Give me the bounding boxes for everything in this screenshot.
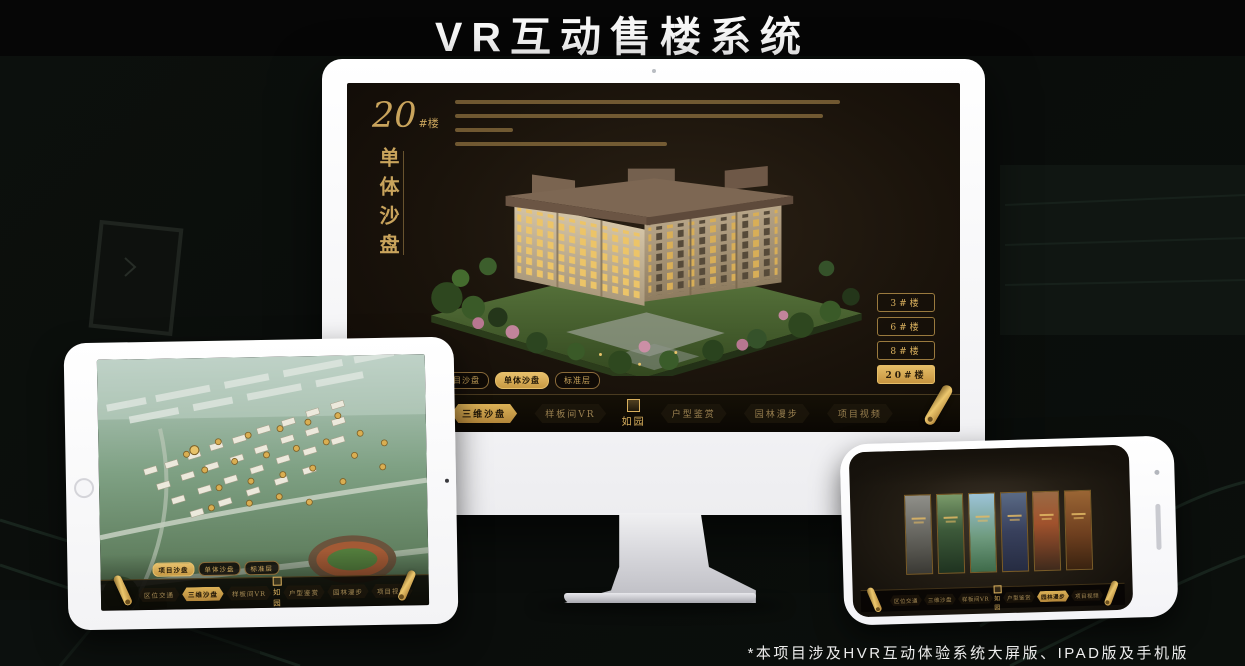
home-button[interactable] bbox=[74, 477, 94, 497]
vertical-rule bbox=[403, 151, 404, 255]
nav-item-project-video[interactable]: 项目视频 bbox=[825, 404, 895, 423]
tab-single-sandtable[interactable]: 单体沙盘 bbox=[198, 561, 240, 576]
floor-button-3[interactable]: 3#楼 bbox=[877, 293, 935, 312]
scroll-handle-icon[interactable] bbox=[1103, 580, 1119, 607]
scroll-handle-icon[interactable] bbox=[923, 383, 955, 427]
nav-item-location-traffic[interactable]: 区位交通 bbox=[889, 594, 923, 606]
building-title: 20#楼 bbox=[372, 99, 439, 134]
nav-item-3d-sandtable[interactable]: 三维沙盘 bbox=[449, 404, 519, 423]
nav-item-floorplan[interactable]: 户型鉴赏 bbox=[282, 585, 326, 600]
ipad-screen: 项目沙盘 单体沙盘 标准层 区位交通 三维沙盘 样板间VR 如园 户型鉴赏 园林… bbox=[97, 354, 429, 611]
tab-standard-floor[interactable]: 标准层 bbox=[555, 372, 600, 389]
building-number: 20 bbox=[372, 96, 417, 136]
nav-item-garden-walk[interactable]: 园林漫步 bbox=[326, 584, 370, 599]
floor-button-group: 3#楼 6#楼 8#楼 20#楼 bbox=[877, 293, 935, 389]
nav-item-location-traffic[interactable]: 区位交通 bbox=[137, 587, 181, 602]
panorama-card-row bbox=[904, 490, 1093, 575]
phone-screen: 区位交通 三维沙盘 样板间VR 如园 户型鉴赏 园林漫步 项目视频 bbox=[849, 445, 1133, 618]
panorama-card-6[interactable] bbox=[1064, 490, 1093, 571]
panorama-card-1[interactable] bbox=[904, 494, 933, 575]
scroll-handle-icon[interactable] bbox=[866, 586, 883, 613]
monitor-stand bbox=[558, 513, 762, 603]
ipad-sandtable-tabs: 项目沙盘 单体沙盘 标准层 bbox=[152, 561, 279, 577]
nav-item-project-video[interactable]: 项目视频 bbox=[1070, 589, 1104, 601]
nav-item-3d-sandtable[interactable]: 三维沙盘 bbox=[923, 593, 957, 605]
panorama-card-4[interactable] bbox=[1000, 491, 1029, 572]
brand-seal-icon bbox=[994, 585, 1002, 593]
footnote: *本项目涉及HVR互动体验系统大屏版、IPAD版及手机版 bbox=[748, 642, 1189, 663]
brand-logo[interactable]: 如园 bbox=[273, 577, 283, 609]
nav-item-model-room-vr[interactable]: 样板间VR bbox=[225, 586, 273, 601]
brand-seal-icon bbox=[273, 577, 282, 586]
panorama-card-3[interactable] bbox=[968, 492, 997, 573]
brand-logo-text: 如园 bbox=[273, 587, 282, 609]
tab-standard-floor[interactable]: 标准层 bbox=[244, 561, 279, 576]
ipad-device: 项目沙盘 单体沙盘 标准层 区位交通 三维沙盘 样板间VR 如园 户型鉴赏 园林… bbox=[64, 337, 459, 631]
floor-button-6[interactable]: 6#楼 bbox=[877, 317, 935, 336]
scroll-handle-icon[interactable] bbox=[112, 574, 133, 606]
brand-logo-text: 如园 bbox=[994, 593, 1002, 611]
nav-item-floorplan[interactable]: 户型鉴赏 bbox=[1002, 591, 1036, 603]
camera-icon bbox=[445, 478, 449, 482]
brand-seal-icon bbox=[627, 399, 640, 412]
section-vertical-label: 单体沙盘 bbox=[374, 147, 403, 263]
building-3d-render[interactable] bbox=[417, 151, 872, 376]
tab-project-sandtable[interactable]: 项目沙盘 bbox=[152, 562, 194, 577]
nav-item-3d-sandtable[interactable]: 三维沙盘 bbox=[181, 587, 225, 602]
camera-icon bbox=[652, 69, 656, 73]
page-title: VR互动售楼系统 bbox=[0, 3, 1245, 63]
building-suffix: #楼 bbox=[419, 117, 439, 130]
nav-item-garden-walk[interactable]: 园林漫步 bbox=[742, 404, 812, 423]
scene-ceiling-shadow bbox=[849, 445, 1130, 487]
ipad-bottom-nav: 区位交通 三维沙盘 样板间VR 如园 户型鉴赏 园林漫步 项目视频 bbox=[101, 574, 429, 611]
sandtable-tabs: 项目沙盘 单体沙盘 标准层 bbox=[435, 372, 600, 389]
camera-icon bbox=[1154, 470, 1159, 475]
brand-logo[interactable]: 如园 bbox=[994, 585, 1003, 611]
description-text-lines bbox=[455, 100, 847, 156]
promo-canvas: VR互动售楼系统 20#楼 单体沙盘 bbox=[0, 0, 1245, 666]
nav-item-floorplan[interactable]: 户型鉴赏 bbox=[659, 404, 729, 423]
nav-item-model-room-vr[interactable]: 样板间VR bbox=[957, 592, 994, 604]
brand-logo[interactable]: 如园 bbox=[622, 399, 646, 428]
tab-single-sandtable[interactable]: 单体沙盘 bbox=[495, 372, 549, 389]
panorama-card-2[interactable] bbox=[936, 493, 965, 574]
nav-item-garden-walk[interactable]: 园林漫步 bbox=[1036, 590, 1070, 602]
nav-item-model-room-vr[interactable]: 样板间VR bbox=[532, 404, 608, 423]
floor-button-20[interactable]: 20#楼 bbox=[877, 365, 935, 384]
phone-device: 区位交通 三维沙盘 样板间VR 如园 户型鉴赏 园林漫步 项目视频 bbox=[840, 435, 1179, 625]
brand-logo-text: 如园 bbox=[622, 413, 646, 428]
floor-button-8[interactable]: 8#楼 bbox=[877, 341, 935, 360]
phone-bottom-nav: 区位交通 三维沙盘 样板间VR 如园 户型鉴赏 园林漫步 项目视频 bbox=[861, 583, 1126, 612]
panorama-card-5[interactable] bbox=[1032, 491, 1061, 572]
speaker-pill-icon bbox=[1155, 503, 1161, 549]
